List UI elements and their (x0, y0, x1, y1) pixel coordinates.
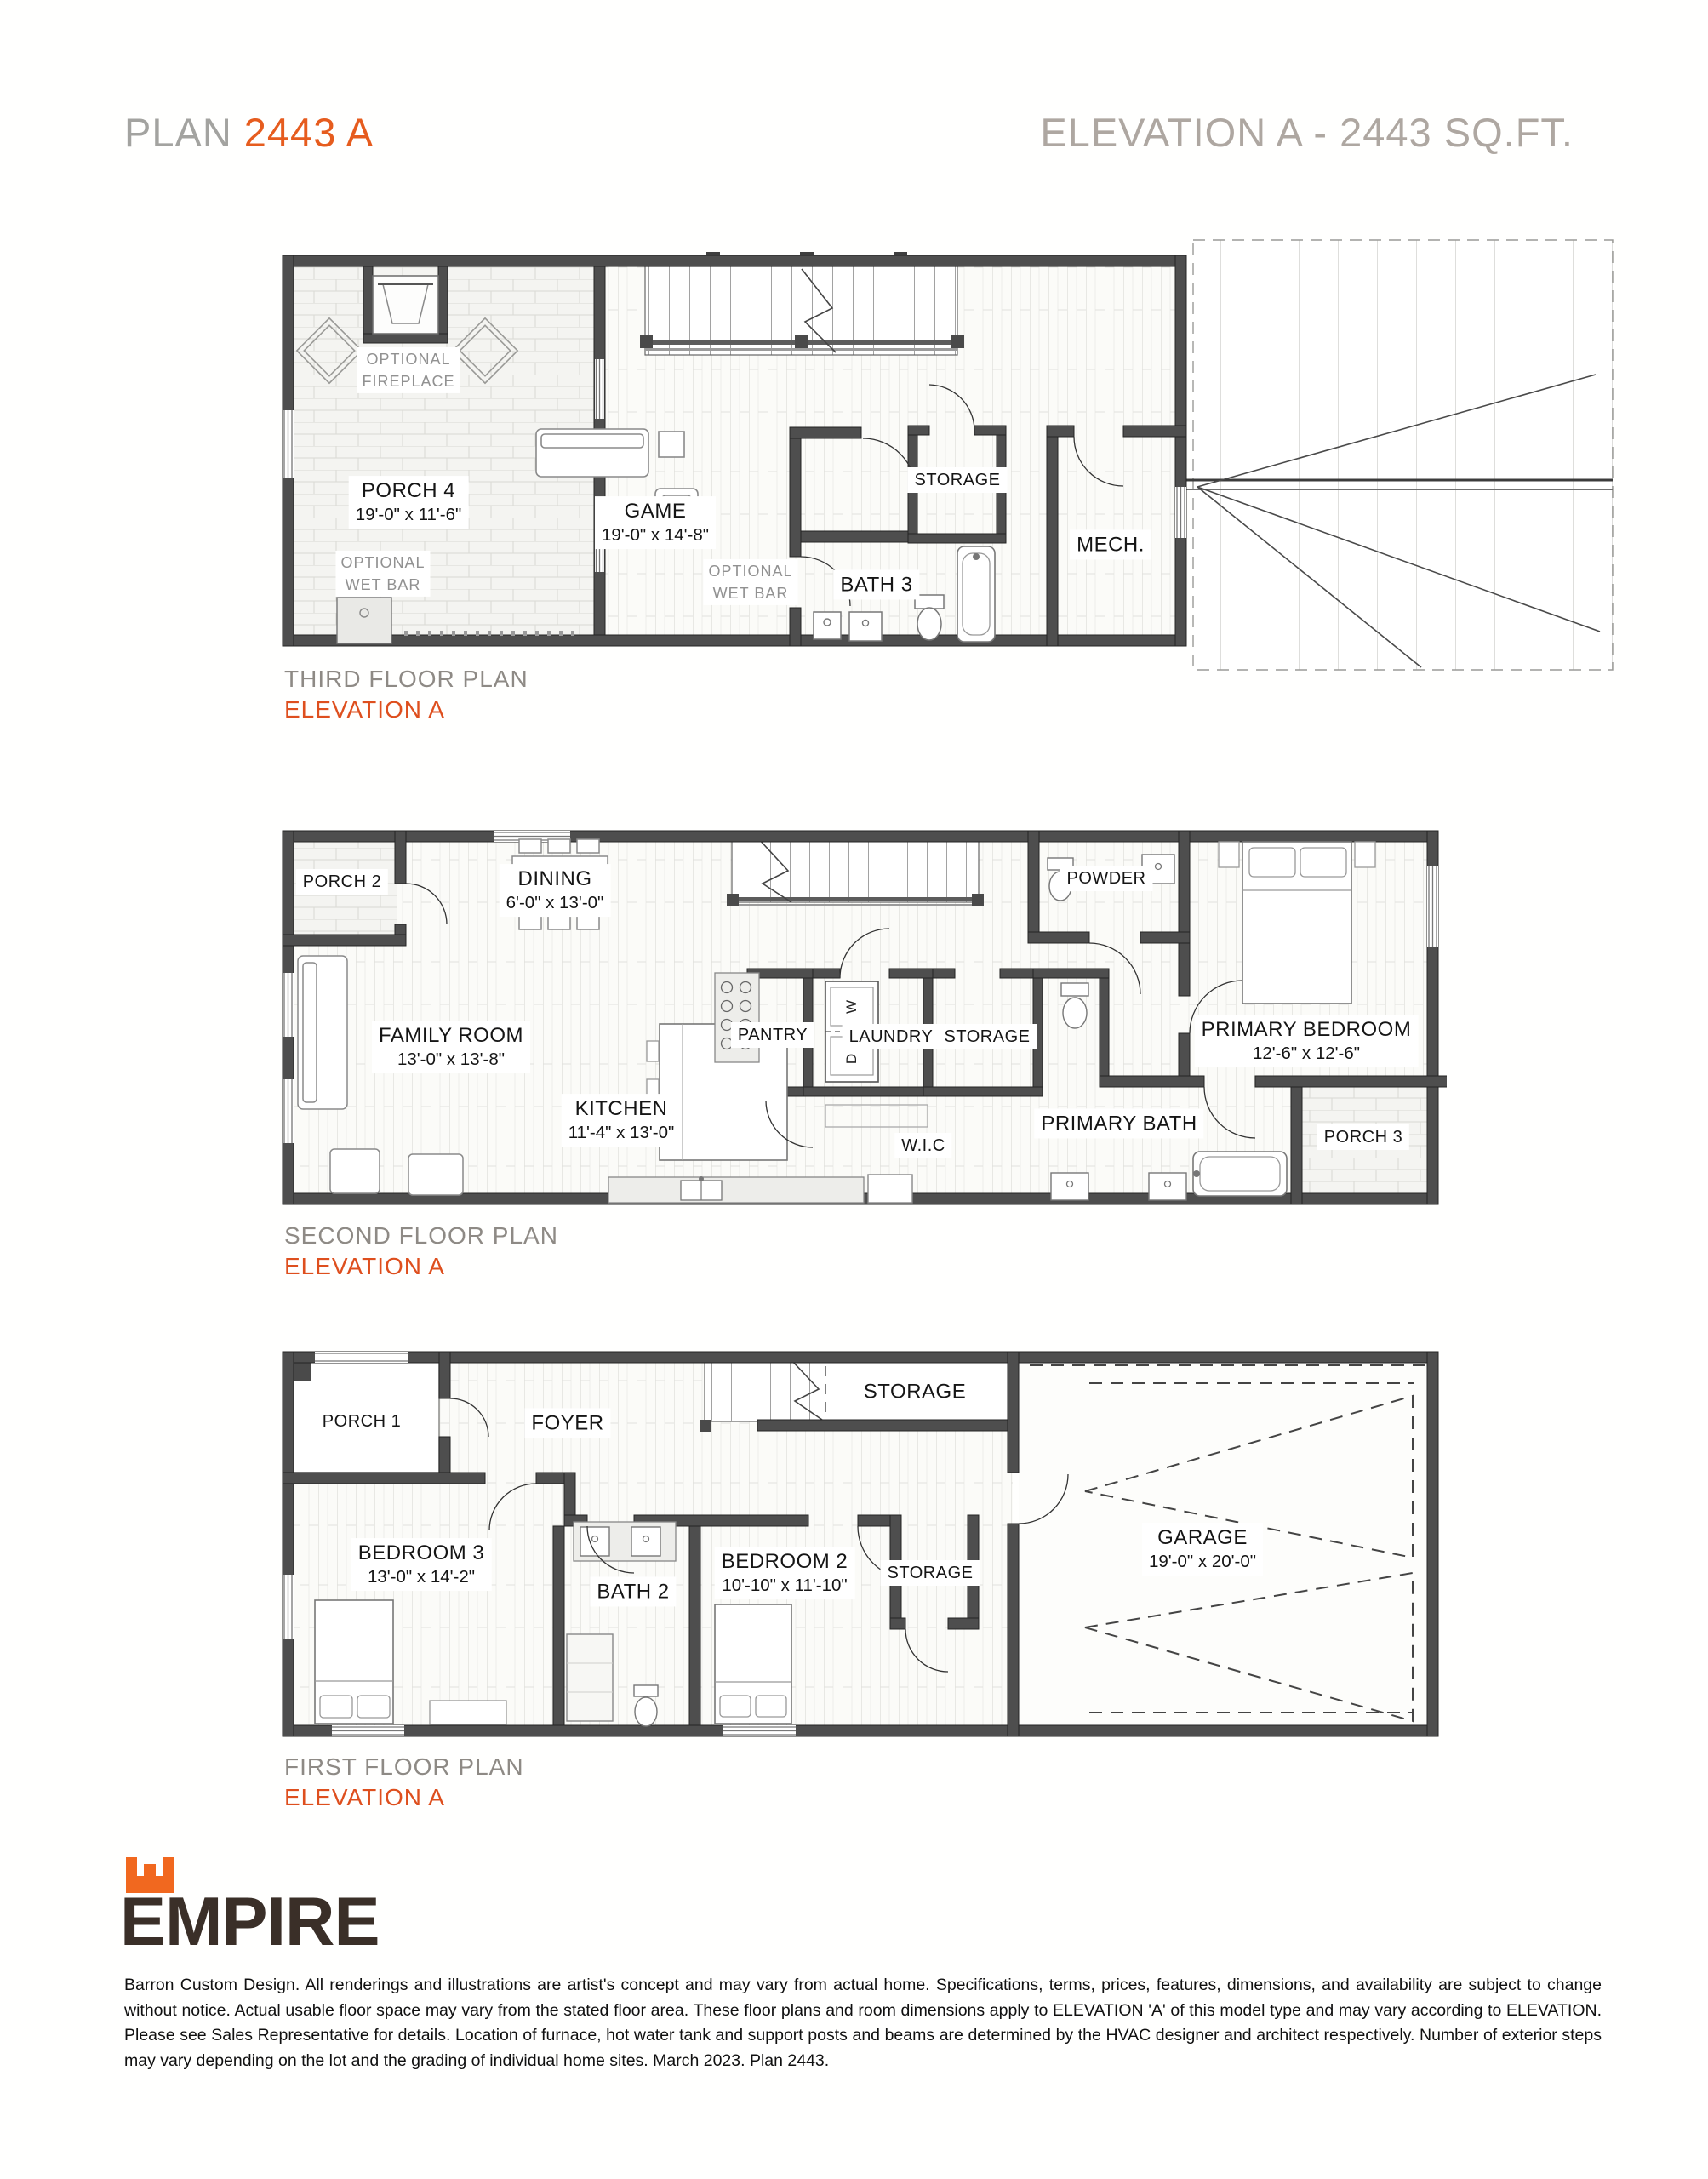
room-name: BATH 3 (840, 571, 912, 598)
room-label-garage: GARAGE 19'-0" x 20'-0" (1142, 1523, 1263, 1576)
stairs (727, 836, 984, 906)
washer-label: W (843, 1000, 860, 1014)
room-label-laundry: LAUNDRY (843, 1024, 940, 1049)
first-floor-caption: FIRST FLOOR PLAN ELEVATION A (284, 1752, 524, 1813)
third-floor-plan: PORCH 4 19'-0" x 11'-6" GAME 19'-0" x 14… (281, 232, 1621, 738)
plan-title: PLAN2443 A (124, 109, 374, 156)
room-label-porch2: PORCH 2 (296, 869, 388, 895)
roof-deck (1125, 240, 1613, 670)
room-label-bedroom3: BEDROOM 3 13'-0" x 14'-2" (351, 1538, 492, 1591)
second-floor-caption: SECOND FLOOR PLAN ELEVATION A (284, 1221, 558, 1282)
room-label-porch3: PORCH 3 (1317, 1124, 1409, 1150)
room-name: PORCH 4 (356, 478, 462, 504)
room-name: GAME (602, 498, 709, 524)
room-label-dining: DINING 6'-0" x 13'-0" (500, 864, 611, 917)
plan-prefix: PLAN (124, 110, 232, 155)
room-label-bath2: BATH 2 (590, 1576, 676, 1606)
room-label-primary-bedroom: PRIMARY BEDROOM 12'-6" x 12'-6" (1195, 1015, 1419, 1067)
stairs (640, 252, 964, 355)
room-label-primary-bath: PRIMARY BATH (1034, 1108, 1203, 1138)
wc-fixtures (1061, 983, 1088, 1028)
primary-bed (1219, 842, 1375, 1004)
room-label-storage: STORAGE (908, 467, 1008, 493)
room-label-bath3: BATH 3 (833, 569, 919, 599)
room-label-mech: MECH. (1070, 529, 1151, 559)
third-floor-caption: THIRD FLOOR PLAN ELEVATION A (284, 664, 528, 725)
fireplace-icon (373, 276, 438, 334)
room-label-storage: STORAGE (938, 1024, 1037, 1049)
room-label-family-room: FAMILY ROOM 13'-0" x 13'-8" (372, 1021, 530, 1073)
note-optional-wetbar-porch: OPTIONAL WET BAR (335, 551, 430, 597)
room-label-foyer: FOYER (524, 1408, 610, 1438)
room-label-bedroom2: BEDROOM 2 10'-10" x 11'-10" (715, 1547, 855, 1599)
room-label-wic: W.I.C (894, 1133, 951, 1158)
room-label-pantry: PANTRY (731, 1022, 814, 1048)
plan-number: 2443 A (244, 110, 374, 155)
room-name: STORAGE (915, 469, 1001, 491)
tub-icon (1193, 1152, 1287, 1196)
room-label-kitchen: KITCHEN 11'-4" x 13'-0" (562, 1094, 682, 1147)
room-label-powder: POWDER (1060, 866, 1153, 891)
room-label-game: GAME 19'-0" x 14'-8" (595, 496, 716, 549)
room-label-storage-mid: STORAGE (881, 1560, 980, 1586)
room-name: MECH. (1077, 531, 1145, 558)
bedroom2-furniture (715, 1604, 791, 1724)
room-dims: 19'-0" x 11'-6" (356, 504, 462, 527)
note-optional-wetbar-game: OPTIONAL WET BAR (703, 559, 797, 605)
floor-plan-sheet: PLAN2443 A ELEVATION A - 2443 SQ.FT. (0, 0, 1708, 2179)
room-label-porch4: PORCH 4 19'-0" x 11'-6" (349, 476, 469, 529)
room-dims: 19'-0" x 14'-8" (602, 524, 709, 547)
disclaimer-text: Barron Custom Design. All renderings and… (124, 1973, 1602, 2073)
second-floor-plan: PORCH 2 DINING 6'-0" x 13'-0" POWDER PRI… (281, 824, 1447, 1211)
note-optional-fireplace: OPTIONAL FIREPLACE (357, 347, 460, 393)
elevation-title: ELEVATION A - 2443 SQ.FT. (1040, 109, 1574, 156)
empire-logo: EMPIRE (120, 1883, 380, 1962)
porch-post (293, 1362, 311, 1381)
first-floor-plan: PORCH 1 FOYER STORAGE BEDROOM 3 13'-0" x… (281, 1345, 1447, 1749)
room-label-storage-top: STORAGE (857, 1376, 973, 1406)
dryer-label: D (843, 1054, 860, 1064)
room-label-porch1: PORCH 1 (316, 1409, 408, 1434)
